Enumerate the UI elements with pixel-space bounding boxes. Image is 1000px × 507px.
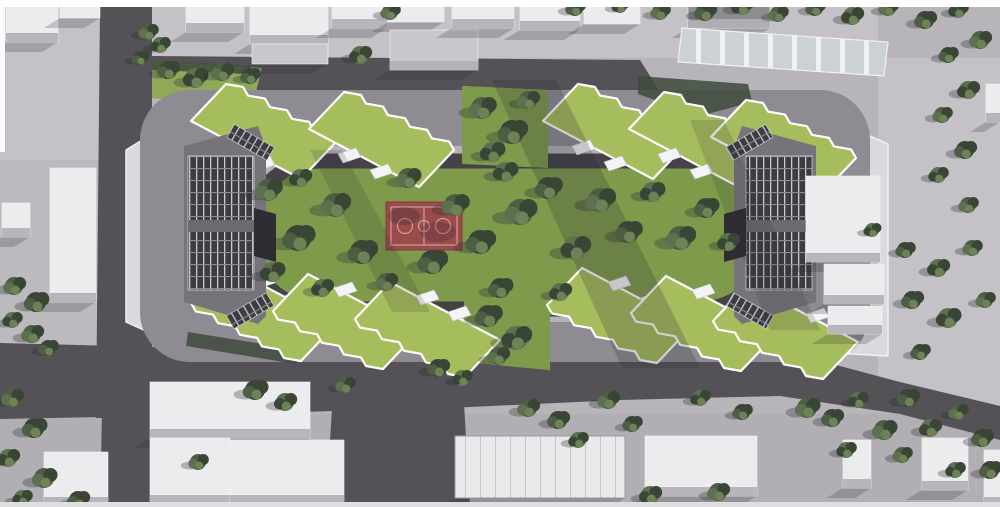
tree-canopy [5,458,14,467]
building-facade [828,325,882,334]
tree-canopy [775,14,783,22]
tree-canopy [902,250,910,258]
frame-top [0,0,1000,7]
building-facade [986,113,1000,122]
tree-shadow [420,222,456,242]
tree-canopy [624,231,635,242]
tree-canopy [572,8,580,16]
tree-canopy [544,187,555,198]
tree-canopy [927,428,936,437]
tree-canopy [676,237,688,249]
frame-left [0,0,5,152]
building-facade [688,19,770,28]
ribbed-building [439,436,625,507]
tree-canopy [555,420,564,429]
tree-canopy [157,45,165,53]
tree-canopy [383,282,392,291]
tree-canopy [955,10,963,18]
tree-canopy [849,16,858,25]
tree-canopy [165,70,174,79]
tree-canopy [9,398,18,407]
tree-canopy [138,58,145,65]
tree-canopy [219,72,228,81]
tree-canopy [357,55,366,64]
tree-canopy [881,430,891,440]
tree-canopy [497,288,507,298]
tree-canopy [297,178,306,187]
building-facade [843,479,871,488]
tree-canopy [629,424,637,432]
tree-canopy [969,248,977,256]
tree-canopy [11,286,20,295]
tree-canopy [697,398,705,406]
frame-bottom [0,502,1000,507]
tree-shadow [388,207,420,225]
tree-canopy [909,300,918,309]
building-facade [150,429,310,438]
tree-canopy [459,378,467,386]
tree-canopy [495,356,504,365]
tree-canopy [525,408,534,417]
tree-canopy [145,32,153,40]
building-roof [806,176,880,262]
tree-canopy [945,55,953,63]
tree-canopy [41,478,51,488]
site-plan-svg [0,0,1000,507]
building-roof [150,438,230,504]
building-facade [452,19,514,28]
tree-canopy [342,385,350,393]
tree-canopy [282,402,291,411]
tree-canopy [293,237,306,250]
aerial-architectural-render [0,0,1000,507]
tree-canopy [962,150,971,159]
building-facade [250,35,328,44]
tree-canopy [478,107,489,118]
tree-canopy [45,348,53,356]
tree-canopy [9,320,17,328]
tree-canopy [982,300,990,308]
tree-canopy [252,390,262,400]
building-facade [390,61,478,70]
tree-canopy [804,408,814,418]
tree-canopy [575,440,583,448]
tree-canopy [987,470,996,479]
tree-canopy [195,462,203,470]
tree-canopy [952,470,960,478]
building-roof [455,436,625,498]
tree-canopy [649,192,659,202]
tree-canopy [739,412,747,420]
tree-canopy [476,241,488,253]
tree-canopy [489,152,499,162]
tree-canopy [870,230,877,237]
tree-canopy [29,334,38,343]
building-facade [806,253,880,262]
tree-canopy [484,315,495,326]
building-facade [332,19,387,28]
tree-canopy [33,302,43,312]
tree-canopy [855,400,863,408]
building-roof [50,168,96,302]
tree-canopy [935,175,943,183]
tree-canopy [935,268,944,277]
tree-canopy [829,418,838,427]
tree-canopy [515,211,528,224]
tree-canopy [247,76,255,84]
bottom-branch-road [326,403,470,507]
tree-canopy [977,40,986,49]
tree-canopy [596,199,608,211]
building-facade [824,295,884,304]
tree-canopy [31,428,41,438]
tree-canopy [557,292,566,301]
tree-canopy [502,172,512,182]
tree-canopy [435,368,444,377]
tree-canopy [843,450,851,458]
tree-canopy [917,352,925,360]
tree-canopy [358,251,370,263]
building-facade [186,23,244,32]
tree-canopy [905,398,914,407]
tree-canopy [715,492,724,501]
tree-canopy [922,20,931,29]
tree-canopy [725,242,734,251]
tree-canopy [955,412,963,420]
facade-tower-left [184,124,276,328]
tree-canopy [939,115,947,123]
tree-canopy [945,318,955,328]
building-facade [6,33,58,42]
building-facade [520,21,580,30]
tree-canopy [192,78,202,88]
tree-canopy [885,8,893,16]
tree-canopy [264,189,275,200]
tree-canopy [331,204,343,216]
tree-canopy [702,12,711,21]
tree-canopy [525,100,534,109]
tree-canopy [508,131,520,143]
building-facade [50,293,96,302]
building-shadow [374,70,478,80]
tree-canopy [965,205,973,213]
tree-canopy [657,12,665,20]
tree-canopy [405,178,415,188]
tree-canopy [451,204,462,215]
tree-canopy [269,272,279,282]
building-facade [2,228,30,237]
tree-canopy [571,247,583,259]
building-roof [252,44,328,64]
tree-canopy [812,8,820,16]
tree-canopy [979,438,988,447]
tree-canopy [703,208,713,218]
tree-canopy [387,12,395,20]
tree-canopy [512,337,524,349]
tree-canopy [899,455,907,463]
tree-canopy [605,400,614,409]
tree-canopy [965,90,974,99]
tree-canopy [428,261,440,273]
floor-divider [188,220,254,232]
building-facade [922,481,968,490]
building [214,440,344,507]
tree-canopy [319,288,328,297]
building-roof [230,440,344,504]
entrance-recess [254,208,276,262]
